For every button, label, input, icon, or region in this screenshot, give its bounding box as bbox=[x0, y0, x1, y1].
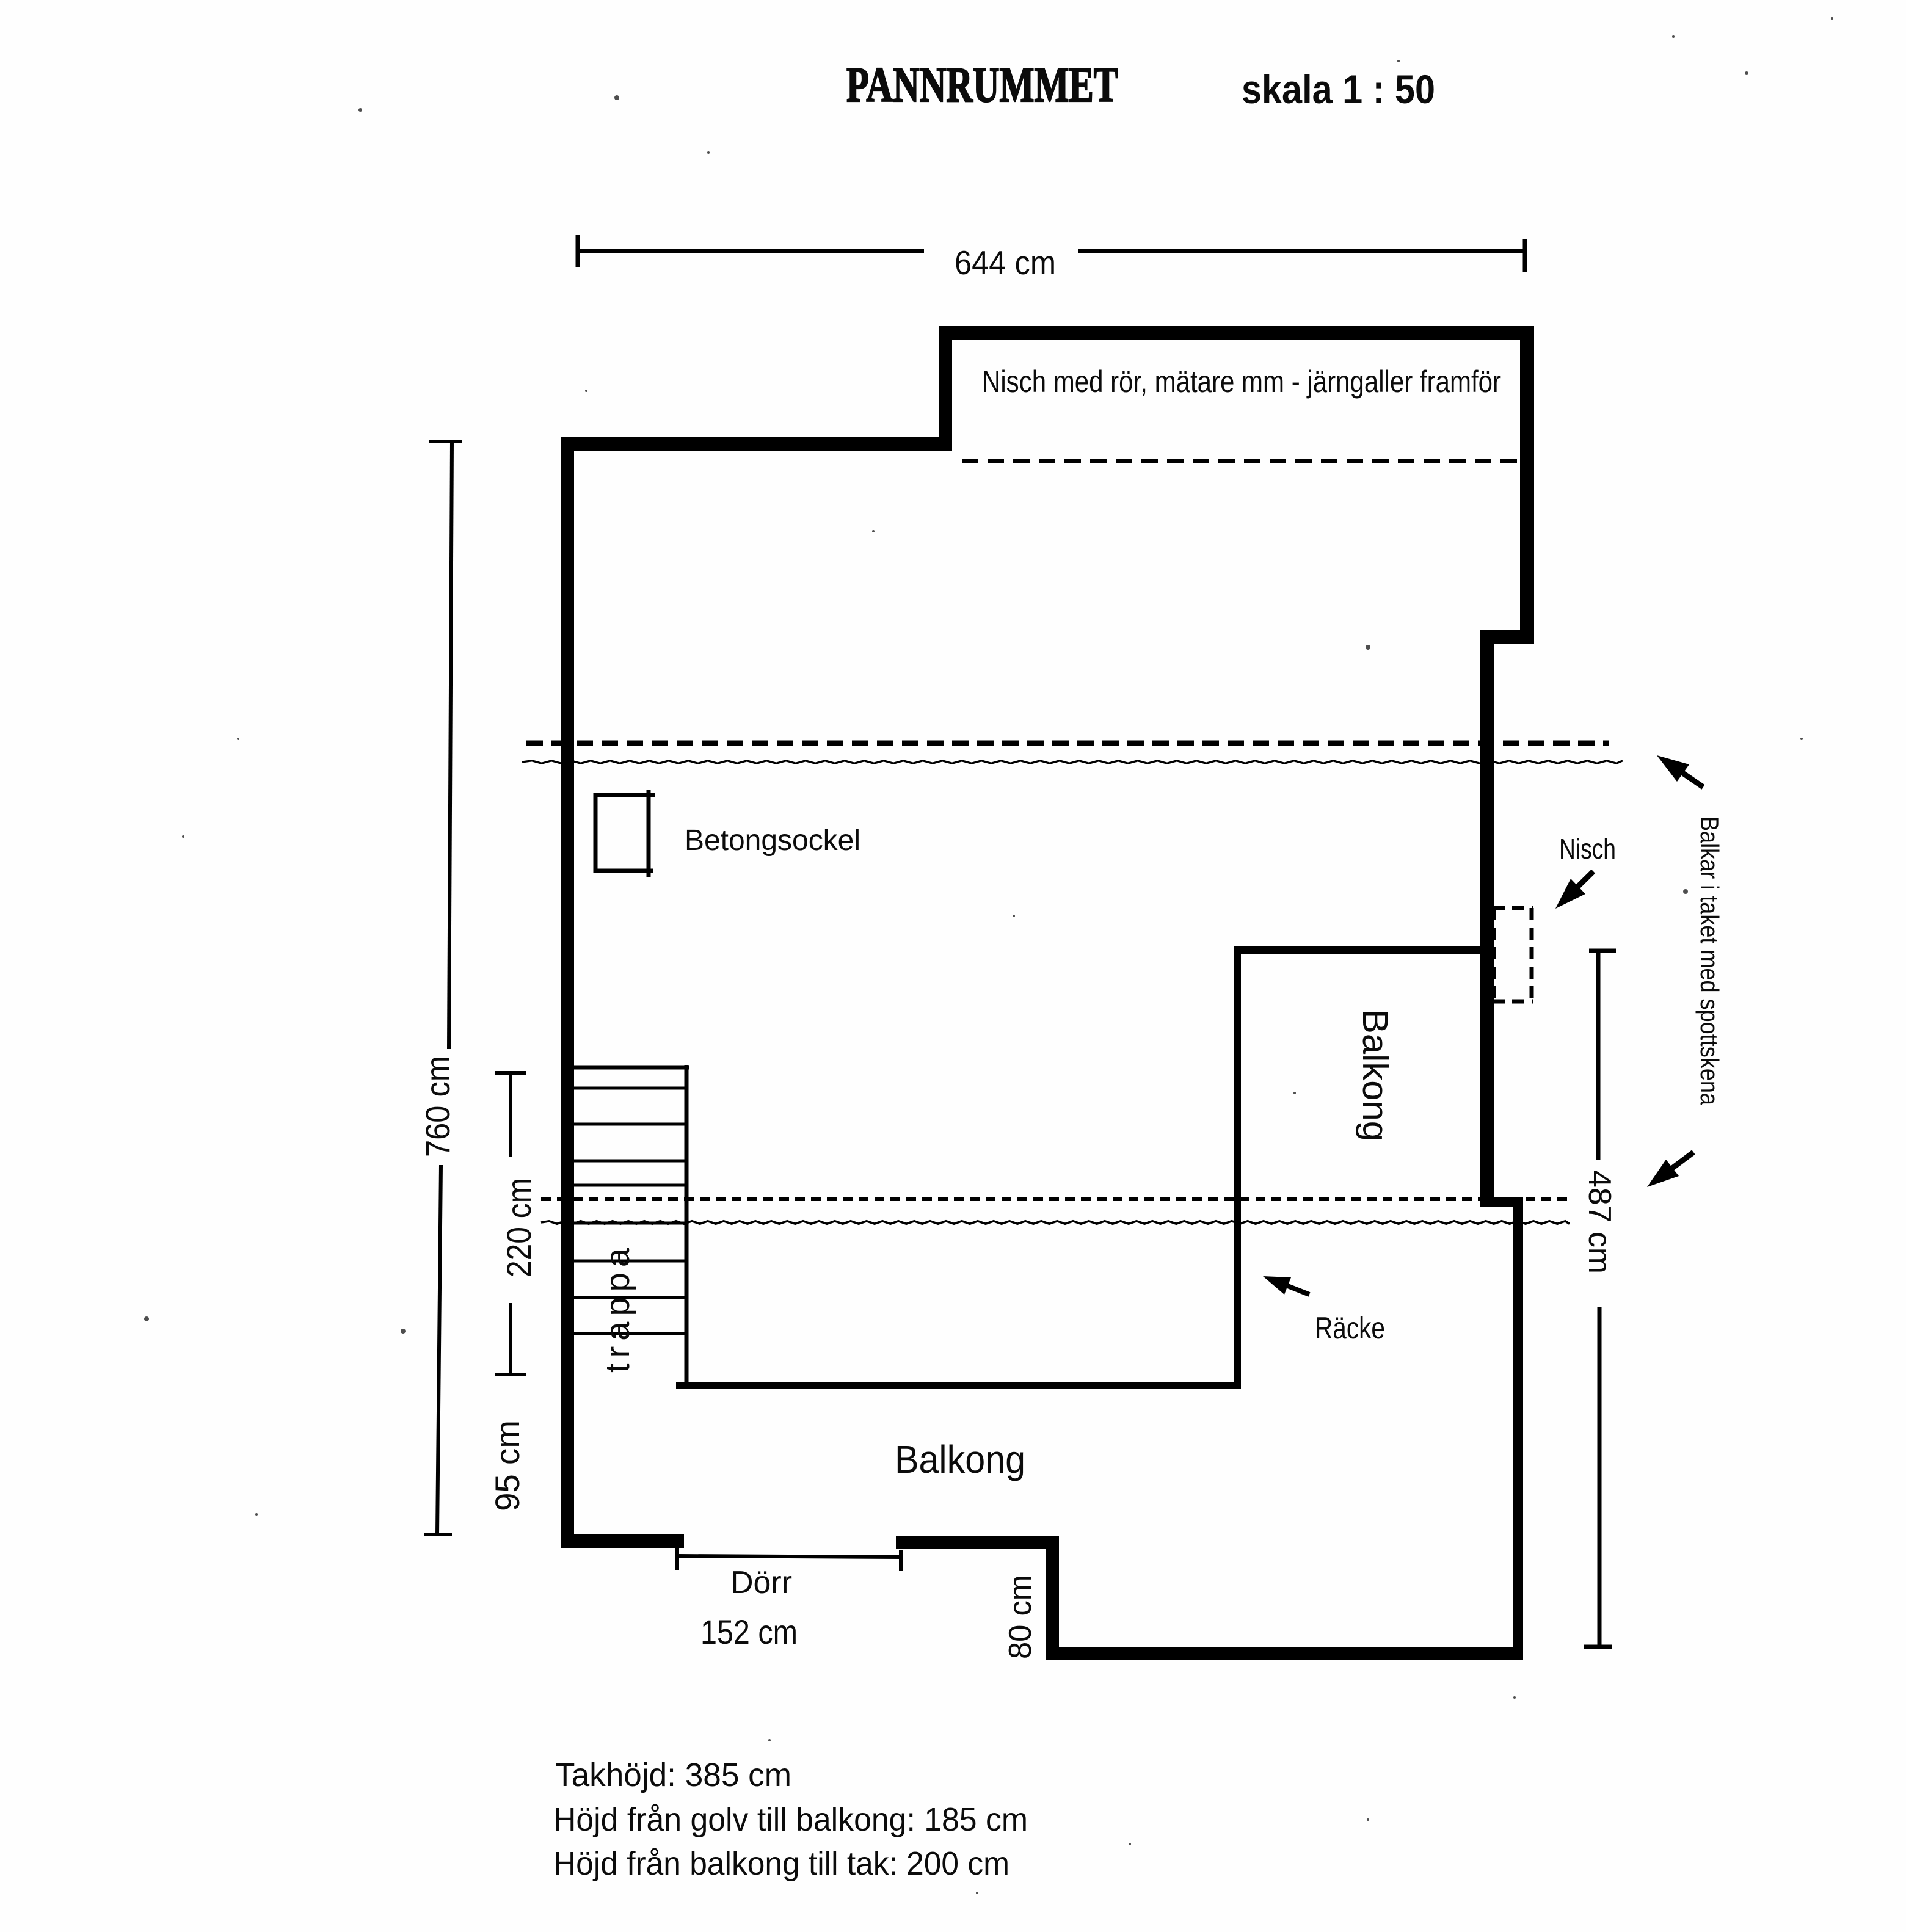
svg-text:Nisch med rör, mätare mm - jä: Nisch med rör, mätare mm - järngaller fr… bbox=[982, 365, 1501, 399]
svg-text:Balkong: Balkong bbox=[1355, 1009, 1395, 1141]
svg-text:644 cm: 644 cm bbox=[955, 244, 1056, 281]
svg-text:Balkar i taket med spottskena: Balkar i taket med spottskena bbox=[1695, 816, 1724, 1106]
svg-text:Betongsockel: Betongsockel bbox=[685, 824, 860, 857]
svg-text:487 cm: 487 cm bbox=[1582, 1170, 1617, 1274]
svg-text:Höjd från golv till balkong:: Höjd från golv till balkong: 185 cm bbox=[553, 1801, 1028, 1838]
svg-text:80 cm: 80 cm bbox=[1003, 1575, 1038, 1659]
svg-text:220 cm: 220 cm bbox=[500, 1178, 538, 1277]
svg-text:152 cm: 152 cm bbox=[700, 1613, 798, 1651]
svg-text:Nisch: Nisch bbox=[1559, 833, 1616, 865]
svg-text:PANNRUMMET: PANNRUMMET bbox=[846, 57, 1118, 112]
svg-text:Räcke: Räcke bbox=[1315, 1311, 1385, 1345]
svg-text:Höjd från balkong till tak: 2: Höjd från balkong till tak: 200 cm bbox=[553, 1845, 1009, 1882]
svg-text:Dörr: Dörr bbox=[730, 1565, 792, 1600]
svg-text:Balkong: Balkong bbox=[895, 1437, 1025, 1481]
svg-text:trappa: trappa bbox=[598, 1247, 636, 1373]
svg-text:760 cm: 760 cm bbox=[418, 1056, 457, 1157]
svg-text:skala 1 : 50: skala 1 : 50 bbox=[1242, 67, 1435, 112]
svg-text:95 cm: 95 cm bbox=[488, 1420, 526, 1511]
svg-text:Takhöjd: 385 cm: Takhöjd: 385 cm bbox=[555, 1757, 791, 1793]
